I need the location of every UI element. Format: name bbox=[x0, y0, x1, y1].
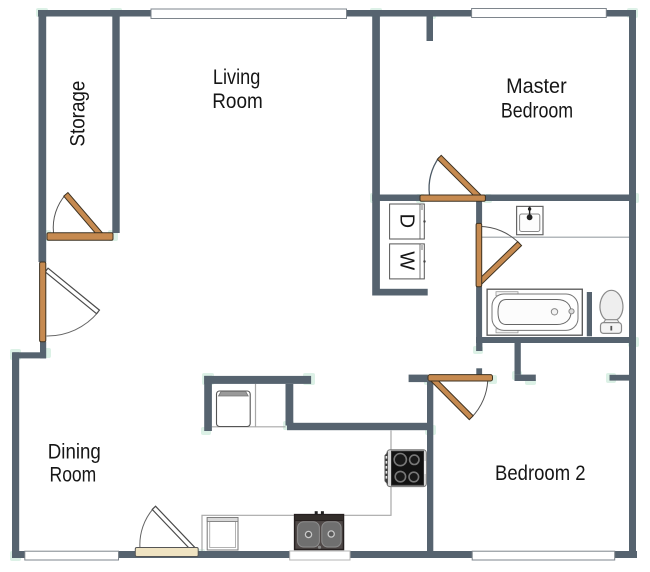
svg-text:W: W bbox=[396, 251, 418, 270]
svg-text:Storage: Storage bbox=[65, 81, 89, 147]
svg-text:Room: Room bbox=[50, 462, 97, 486]
svg-text:D: D bbox=[396, 214, 418, 228]
svg-text:Master: Master bbox=[506, 74, 567, 98]
svg-text:Living: Living bbox=[213, 65, 260, 89]
svg-text:Bedroom 2: Bedroom 2 bbox=[495, 461, 586, 485]
svg-text:Bedroom: Bedroom bbox=[501, 99, 573, 123]
svg-text:Room: Room bbox=[212, 89, 263, 113]
svg-text:Dining: Dining bbox=[48, 439, 101, 463]
